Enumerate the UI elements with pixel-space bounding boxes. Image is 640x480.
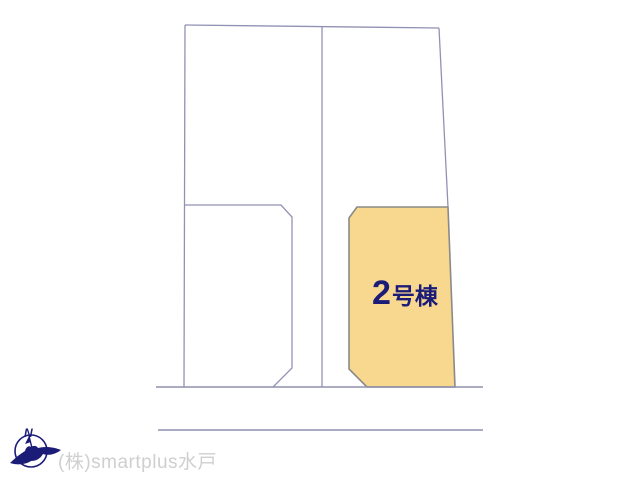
parcel-lower-left-outline [185, 205, 292, 387]
compass-north-icon: N [9, 425, 63, 475]
compass-north-label: N [24, 426, 33, 440]
company-watermark: (株)smartplus水戸 [58, 447, 217, 474]
parcel-2-suffix: 号棟 [392, 285, 438, 308]
plot-map-canvas: 2号棟 N (株)smartplus水戸 [0, 0, 640, 480]
parcel-left-boundary [184, 25, 185, 387]
parcel-top-boundary [185, 25, 439, 28]
parcel-2-number: 2 [372, 276, 392, 310]
parcel-right-boundary [439, 28, 448, 207]
parcel-2-label: 2号棟 [372, 276, 438, 310]
plot-map [0, 0, 640, 480]
bird-logo-icon [10, 446, 61, 464]
